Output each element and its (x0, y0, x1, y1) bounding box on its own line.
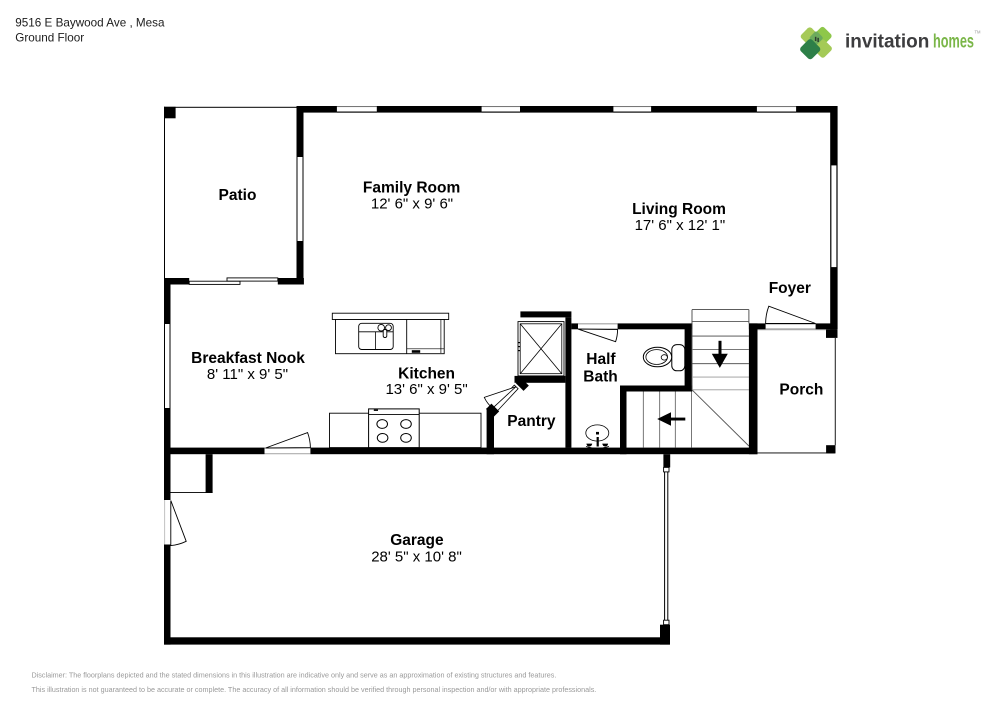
svg-text:homes: homes (933, 31, 974, 53)
svg-text:12' 6" x 9' 6": 12' 6" x 9' 6" (371, 195, 453, 212)
svg-text:Family Room: Family Room (363, 180, 460, 197)
svg-text:Porch: Porch (779, 381, 823, 398)
svg-text:Breakfast Nook: Breakfast Nook (191, 350, 305, 367)
svg-text:17' 6" x 12' 1": 17' 6" x 12' 1" (635, 217, 726, 234)
svg-text:13' 6" x 9' 5": 13' 6" x 9' 5" (385, 381, 467, 398)
svg-text:Patio: Patio (219, 187, 257, 204)
svg-text:invitation: invitation (845, 31, 929, 53)
svg-text:28' 5" x 10' 8": 28' 5" x 10' 8" (371, 548, 462, 565)
svg-text:Bath: Bath (583, 368, 617, 385)
svg-text:9516 E Baywood Ave , Mesa: 9516 E Baywood Ave , Mesa (15, 17, 165, 30)
svg-text:Ground Floor: Ground Floor (15, 32, 84, 45)
svg-text:Garage: Garage (390, 532, 444, 549)
svg-text:Disclaimer: The floorplans dep: Disclaimer: The floorplans depicted and … (32, 670, 557, 679)
svg-text:8' 11" x 9' 5": 8' 11" x 9' 5" (207, 366, 288, 383)
svg-text:Half: Half (586, 351, 616, 368)
svg-text:Pantry: Pantry (507, 413, 556, 430)
svg-text:Kitchen: Kitchen (398, 366, 455, 383)
svg-text:Living Room: Living Room (632, 201, 726, 218)
svg-text:TM: TM (975, 30, 982, 35)
svg-text:Foyer: Foyer (769, 280, 811, 297)
svg-text:This illustration is not guara: This illustration is not guaranteed to b… (32, 685, 597, 694)
